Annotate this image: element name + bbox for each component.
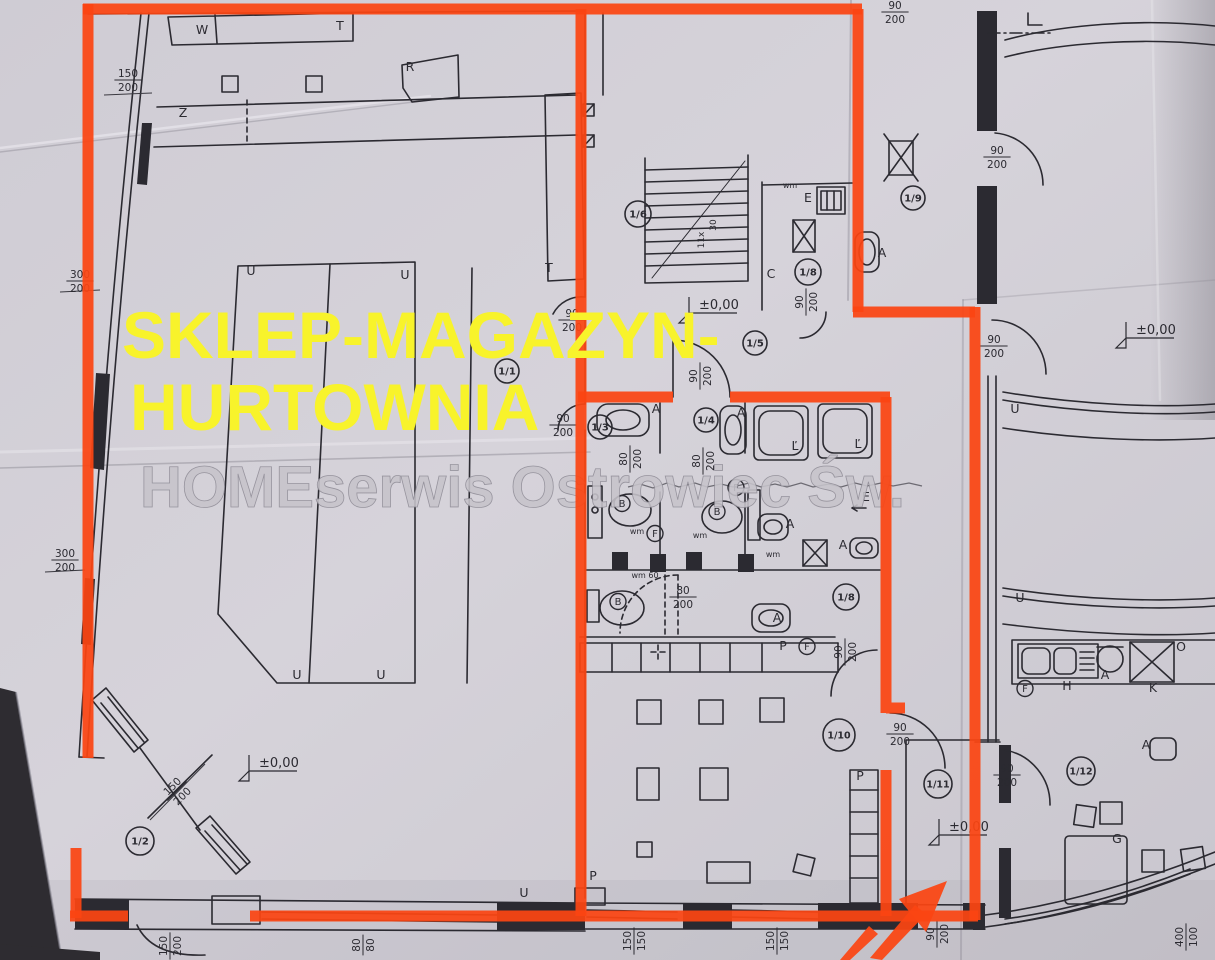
dim-top: 90 [888,0,901,12]
letter-label: T [335,18,344,33]
dim-bottom: 200 [890,736,910,748]
dim-bottom: 200 [987,159,1007,171]
dim-bottom: 150 [636,931,648,951]
letter-label: P [589,868,597,883]
dim-bottom: 200 [55,562,75,574]
dim-bottom: 200 [885,14,905,26]
letter-label: A [652,401,661,416]
letter-label: U [1010,401,1019,416]
room-marker-label: 1/3 [591,423,609,434]
floorplan-canvas: 1502003002003002009020090200902009020080… [0,0,1215,960]
room-marker-label: 1/9 [904,194,922,205]
dim-bottom: 80 [365,938,377,951]
room-marker-label: 1/6 [629,210,647,221]
dim-bottom: 100 [1188,927,1200,947]
letter-label: A [878,245,887,260]
dim-top: 80 [676,585,689,597]
dim-bottom: 200 [939,924,951,944]
letter-label: Ľ [855,436,862,451]
room-marker-label: 1/11 [926,780,949,791]
letter-label: O [1176,639,1186,654]
dim-top: 150 [118,68,138,80]
dim-top: 90 [556,413,569,425]
letter-label: W [196,22,208,37]
small-label: wm 60 [631,571,658,580]
room-marker-label: 1/10 [827,731,851,742]
dim-top: 150 [622,931,634,951]
letter-label: E [804,190,812,205]
letter-label: A [1101,667,1110,682]
dim-top: 90 [987,334,1000,346]
letter-label: H [1062,678,1071,693]
letter-label: C [767,266,776,281]
dim-top: 300 [55,548,75,560]
room-marker-label: 1/5 [746,339,764,350]
dim-top: 90 [990,145,1003,157]
dim-bottom: 200 [118,82,138,94]
letter-label: U [376,667,385,682]
dim-bottom: 200 [808,292,820,312]
letter-label: P [856,768,864,783]
letter-label: U [246,263,255,278]
letter-label: U [400,267,409,282]
dim-bottom: 200 [847,642,859,662]
dim-bottom: 200 [673,599,693,611]
dim-top: 150 [765,931,777,951]
room-marker-label: 1/4 [697,416,715,427]
room-marker-label: 1/8 [837,593,855,604]
level-mark-text: ±0,00 [949,820,989,835]
circled-letter-text: F [1022,684,1028,695]
letter-label: A [1142,737,1151,752]
circled-letter-text: F [804,642,810,653]
caption-line-2: HURTOWNIA [130,370,539,444]
floorplan-photo: 1502003002003002009020090200902009020080… [0,0,1215,960]
letter-label: Ľ [792,438,799,453]
dim-bottom: 200 [984,348,1004,360]
letter-label: U [1015,590,1024,605]
letter-label: A [839,537,848,552]
room-marker-label: 1/8 [799,268,817,279]
room-marker-label: 1/12 [1069,767,1092,778]
dim-bottom: 150 [779,931,791,951]
letter-label: A [773,610,782,625]
dim-top: 80 [351,938,363,951]
dim-bottom: 200 [997,777,1017,789]
dim-bottom: 200 [172,936,184,956]
dim-bottom: 200 [553,427,573,439]
dim-top: 90 [833,645,845,658]
letter-label: Z [179,105,188,120]
stair-note: 11x [697,231,707,248]
small-label: wm [766,550,781,559]
letter-label: P [779,638,787,653]
level-mark-text: ±0,00 [1136,323,1176,338]
letter-label: U [519,885,528,900]
small-label: wm [693,531,708,540]
small-label: wm [783,181,798,190]
dim-top: 150 [158,936,170,956]
dim-top: 90 [893,722,906,734]
circled-letter-text: F [652,529,658,540]
small-label: wm [630,527,645,536]
letter-label: G [1112,831,1122,846]
stair-note: 30 [709,219,719,231]
watermark-text: HOMEserwis Ostrowiec Św. [140,455,905,520]
caption-line-1: SKLEP-MAGAZYN- [122,298,720,372]
letter-label: R [406,59,415,74]
room-marker-label: 1/2 [131,837,149,848]
circled-letter-text: B [615,597,622,608]
letter-label: K [1149,680,1158,695]
letter-label: A [737,405,746,420]
level-mark-text: ±0,00 [259,756,299,771]
letter-label: T [544,260,553,275]
letter-label: U [292,667,301,682]
dim-top: 400 [1174,927,1186,947]
dim-top: 90 [1000,763,1013,775]
dim-top: 90 [794,295,806,308]
